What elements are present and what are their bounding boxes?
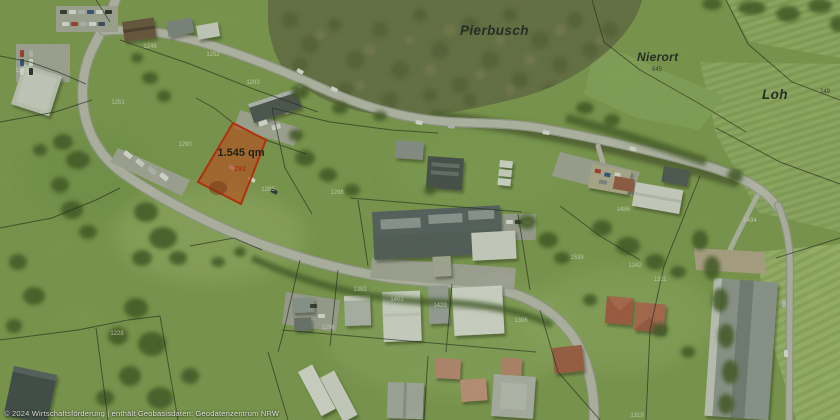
aerial-photo: 1.545 qm 292 1246 1252 1251 1293 1290 12…	[0, 0, 840, 420]
map-root[interactable]: 1.545 qm 292 1246 1252 1251 1293 1290 12…	[0, 0, 840, 420]
grain-overlay	[0, 0, 840, 420]
